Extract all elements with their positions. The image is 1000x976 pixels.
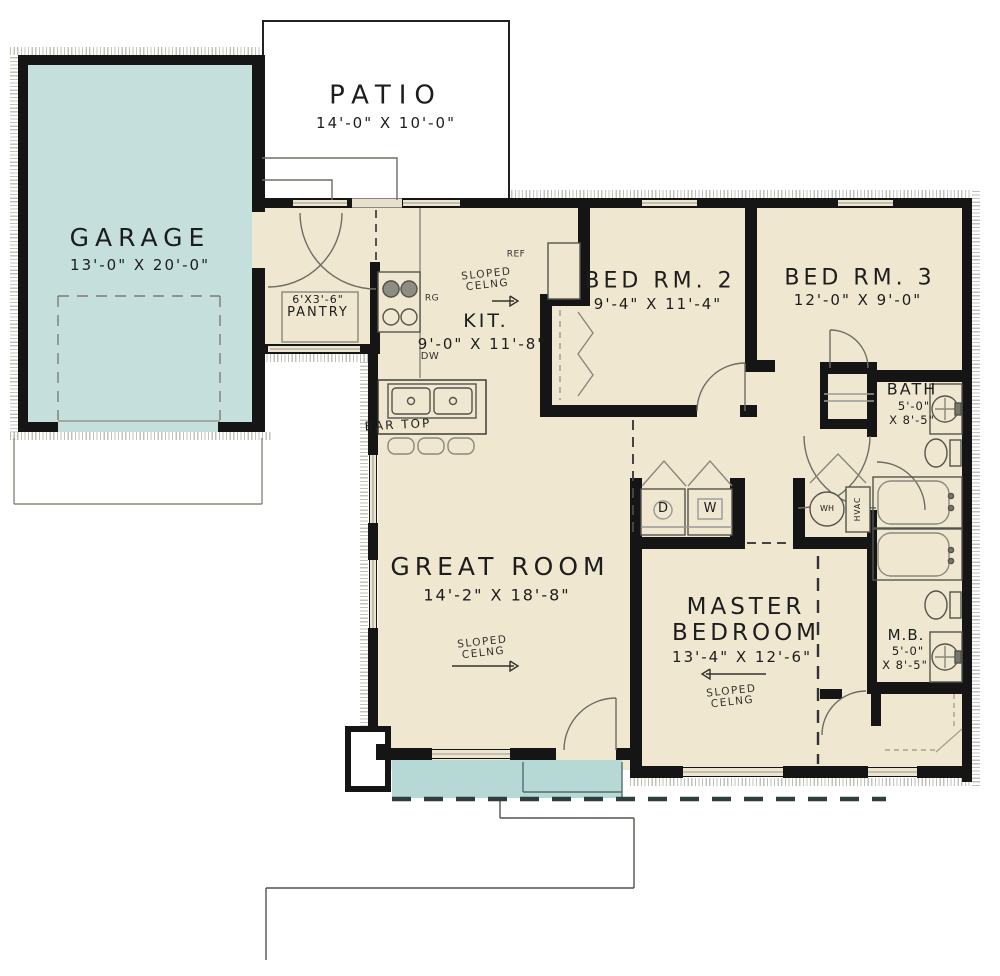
wall-segment bbox=[630, 766, 683, 778]
room-dims-pantry: 6'X3'-6" bbox=[292, 294, 344, 306]
wall-segment bbox=[18, 55, 265, 65]
room-label-master-2: BEDROOM bbox=[672, 621, 820, 645]
window bbox=[838, 199, 893, 207]
room-label-bedroom2: BED RM. 2 bbox=[584, 269, 735, 292]
wall-segment bbox=[867, 370, 877, 437]
window bbox=[293, 199, 347, 207]
exterior-hatch bbox=[972, 190, 980, 786]
room-dims-master-bath-2: X 8'-5" bbox=[882, 659, 928, 671]
window bbox=[268, 345, 360, 353]
wall-segment bbox=[252, 55, 265, 212]
exterior-hatch bbox=[10, 55, 18, 440]
room-label-great-room: GREAT ROOM bbox=[390, 554, 609, 580]
wall-segment bbox=[867, 549, 877, 682]
wall-segment bbox=[871, 694, 881, 726]
window bbox=[369, 560, 377, 628]
wall-segment bbox=[820, 689, 842, 699]
wall-segment bbox=[740, 405, 757, 417]
room-label-master-bath: M.B. bbox=[888, 628, 925, 644]
wall-segment bbox=[962, 198, 972, 782]
wall-segment bbox=[370, 262, 380, 354]
window bbox=[683, 767, 783, 777]
walkway-outline bbox=[266, 800, 634, 960]
patio-sliding-door bbox=[352, 198, 402, 208]
washer-label: W bbox=[704, 502, 717, 516]
wall-segment bbox=[867, 682, 962, 694]
wall-segment bbox=[218, 422, 265, 432]
room-mud-pantry-fill bbox=[252, 198, 378, 354]
exterior-hatch bbox=[10, 432, 272, 440]
garage-door-opening bbox=[58, 422, 218, 432]
room-dims-bath-1: 5'-0" bbox=[898, 400, 930, 412]
exterior-hatch bbox=[630, 778, 972, 786]
exterior-hatch bbox=[10, 47, 272, 55]
room-dims-bedroom2: 9'-4" X 11'-4" bbox=[594, 297, 722, 313]
window bbox=[369, 455, 377, 523]
room-label-pantry: PANTRY bbox=[287, 306, 349, 320]
room-label-bedroom3: BED RM. 3 bbox=[784, 266, 935, 289]
room-dims-great-room: 14'-2" X 18'-8" bbox=[423, 588, 570, 605]
fireplace-notch bbox=[376, 744, 390, 760]
exterior-hatch bbox=[360, 352, 368, 752]
wall-segment bbox=[783, 766, 868, 778]
wall-segment bbox=[540, 405, 697, 417]
floor-plan: PATIO 14'-0" X 10'-0" GARAGE 13'-0" X 20… bbox=[0, 0, 1000, 976]
wall-segment bbox=[510, 748, 556, 760]
wall-segment bbox=[745, 208, 757, 372]
wall-segment bbox=[793, 537, 877, 549]
wall-segment bbox=[18, 422, 58, 432]
wall-segment bbox=[820, 362, 828, 427]
room-label-kitchen: KIT. bbox=[463, 312, 508, 332]
wall-segment bbox=[368, 523, 378, 560]
room-dims-patio: 14'-0" X 10'-0" bbox=[316, 116, 456, 132]
water-heater-label: WH bbox=[820, 505, 834, 513]
room-dims-master: 13'-4" X 12'-6" bbox=[672, 650, 812, 666]
wall-segment bbox=[368, 345, 378, 455]
wall-segment bbox=[540, 302, 552, 417]
window bbox=[403, 199, 460, 207]
room-label-bath: BATH bbox=[887, 382, 937, 399]
window bbox=[868, 767, 917, 777]
window bbox=[642, 199, 697, 207]
front-porch-fill bbox=[392, 760, 622, 798]
range-label: RG bbox=[425, 294, 439, 303]
wall-segment bbox=[630, 549, 642, 766]
room-dims-garage: 13'-0" X 20'-0" bbox=[70, 258, 210, 274]
room-label-garage: GARAGE bbox=[70, 225, 211, 251]
dishwasher-label: DW bbox=[421, 352, 440, 363]
wall-segment bbox=[630, 537, 745, 549]
window bbox=[432, 749, 510, 759]
driveway-outline bbox=[14, 438, 262, 504]
wall-segment bbox=[745, 360, 775, 372]
room-dims-bath-2: X 8'-5" bbox=[889, 414, 935, 426]
room-label-patio: PATIO bbox=[329, 82, 443, 109]
exterior-hatch bbox=[252, 354, 378, 362]
hvac-label: HVAC bbox=[854, 497, 862, 522]
room-label-master-1: MASTER bbox=[687, 595, 806, 619]
dryer-label: D bbox=[658, 502, 668, 516]
wall-segment bbox=[18, 55, 28, 432]
room-dims-master-bath-1: 5'-0" bbox=[892, 645, 924, 657]
room-dims-bedroom3: 12'-0" X 9'-0" bbox=[794, 293, 922, 309]
refrigerator-label: REF bbox=[507, 250, 526, 259]
